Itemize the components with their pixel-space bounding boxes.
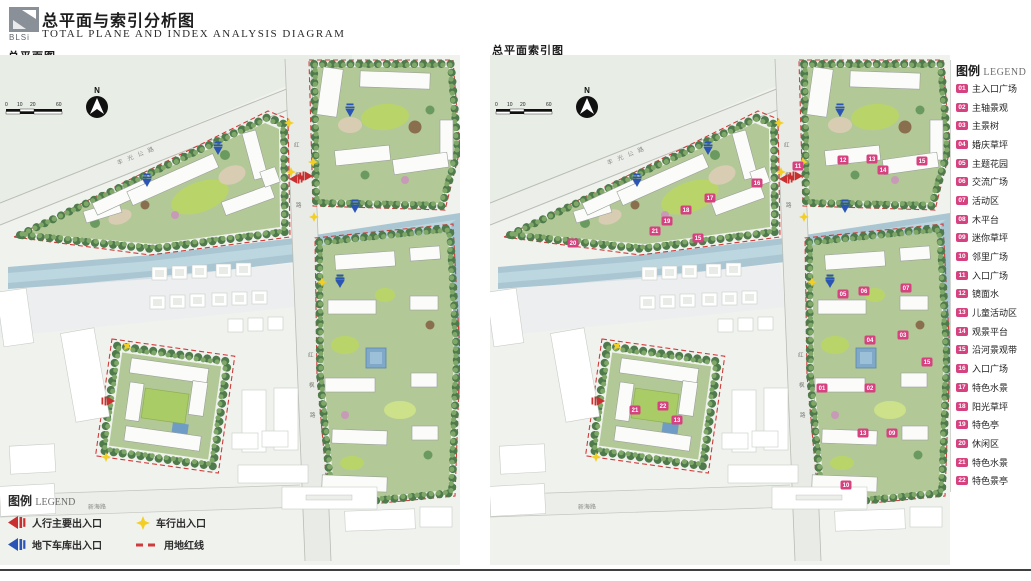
index-plan-canvas: 丰光公路 红 枫 路 红 枫 路 新海路 2021191817161511121… xyxy=(490,55,950,565)
index-marker: 15 xyxy=(693,234,704,243)
svg-text:05: 05 xyxy=(840,292,847,298)
index-legend-label: 邻里广场 xyxy=(972,250,1008,263)
index-legend-item: 10邻里广场 xyxy=(956,247,1030,266)
svg-text:60: 60 xyxy=(546,102,552,108)
index-legend-label: 木平台 xyxy=(972,213,999,226)
index-legend-item: 07活动区 xyxy=(956,191,1030,210)
legend-item-pedestrian: 人行主要出入口 xyxy=(8,515,136,530)
index-legend-badge: 11 xyxy=(956,271,968,280)
index-legend-badge: 22 xyxy=(956,476,968,485)
parcel-top-right xyxy=(799,60,950,210)
index-legend-badge: 07 xyxy=(956,196,968,205)
index-legend-label: 特色亭 xyxy=(972,418,999,431)
index-marker: 13 xyxy=(858,429,869,438)
index-marker: 15 xyxy=(917,157,928,166)
index-legend-list: 01主入口广场02主轴景观03主景树04婚庆草坪05主题花园06交流广场07活动… xyxy=(956,79,1030,490)
entrance-legend-title: 图例 LEGEND xyxy=(8,492,248,509)
svg-text:10: 10 xyxy=(843,483,850,489)
vertical-road-label-char: 路 xyxy=(800,411,806,419)
index-legend-label: 主题花园 xyxy=(972,157,1008,170)
index-legend-badge: 10 xyxy=(956,252,968,261)
vertical-road-label-char: 红 xyxy=(308,351,314,359)
index-legend-item: 22特色景亭 xyxy=(956,471,1030,490)
index-marker: 19 xyxy=(662,217,673,226)
index-marker: 11 xyxy=(793,162,804,171)
index-legend-item: 05主题花园 xyxy=(956,154,1030,173)
index-legend-label: 迷你草坪 xyxy=(972,231,1008,244)
vertical-road-label-char: 红 xyxy=(294,141,300,149)
index-legend-label: 儿童活动区 xyxy=(972,306,1017,319)
index-legend-item: 01主入口广场 xyxy=(956,79,1030,98)
index-legend-label: 休闲区 xyxy=(972,437,999,450)
index-legend-item: 21特色水景 xyxy=(956,453,1030,472)
site-plan-svg: 丰光公路 红 枫 路 红 枫 路 新海路 0 10 20 60 N xyxy=(0,55,460,565)
svg-text:N: N xyxy=(584,86,590,95)
svg-text:16: 16 xyxy=(754,181,761,187)
svg-text:14: 14 xyxy=(880,168,887,174)
index-legend-item: 09迷你草坪 xyxy=(956,229,1030,248)
svg-text:15: 15 xyxy=(919,159,926,165)
svg-text:12: 12 xyxy=(840,158,847,164)
index-marker: 02 xyxy=(865,384,876,393)
general-plan-canvas: 丰光公路 红 枫 路 红 枫 路 新海路 0 10 20 60 N xyxy=(0,55,460,565)
index-legend-badge: 09 xyxy=(956,233,968,242)
index-legend-item: 04婚庆草坪 xyxy=(956,135,1030,154)
company-logo-icon xyxy=(9,7,39,32)
index-legend-item: 12镜面水 xyxy=(956,285,1030,304)
vertical-road-label-char: 枫 xyxy=(799,381,805,389)
index-marker: 22 xyxy=(658,402,669,411)
index-marker: 21 xyxy=(630,406,641,415)
vertical-road-label-char: 路 xyxy=(786,201,792,209)
index-marker: 01 xyxy=(817,384,828,393)
index-legend-item: 11入口广场 xyxy=(956,266,1030,285)
svg-text:20: 20 xyxy=(570,241,577,247)
svg-text:17: 17 xyxy=(707,196,714,202)
index-legend-badge: 03 xyxy=(956,121,968,130)
svg-text:15: 15 xyxy=(695,236,702,242)
index-marker: 14 xyxy=(878,166,889,175)
legend-item-vehicle: 车行出入口 xyxy=(136,515,246,530)
index-legend-item: 13儿童活动区 xyxy=(956,303,1030,322)
page-subtitle: TOTAL PLANE AND INDEX ANALYSIS DIAGRAM xyxy=(42,28,345,40)
index-legend-title: 图例 LEGEND xyxy=(956,62,1030,79)
index-legend-label: 阳光草坪 xyxy=(972,400,1008,413)
svg-text:0: 0 xyxy=(495,102,498,108)
index-legend-label: 主景树 xyxy=(972,119,999,132)
garage-entrance-icon xyxy=(8,538,26,551)
legend-item-redline: 用地红线 xyxy=(136,537,246,552)
index-legend-label: 主轴景观 xyxy=(972,101,1008,114)
vertical-road-label-char: 红 xyxy=(784,141,790,149)
index-legend-badge: 19 xyxy=(956,420,968,429)
index-legend-label: 沿河景观带 xyxy=(972,343,1017,356)
legend-item-garage: 地下车库出入口 xyxy=(8,537,136,552)
index-marker: 12 xyxy=(838,156,849,165)
svg-text:13: 13 xyxy=(674,418,681,424)
redline-icon xyxy=(136,542,158,548)
svg-text:N: N xyxy=(94,86,100,95)
index-marker: 16 xyxy=(752,179,763,188)
pedestrian-entrance-icon xyxy=(8,516,26,529)
svg-text:22: 22 xyxy=(660,404,667,410)
index-legend-item: 08木平台 xyxy=(956,210,1030,229)
parcel-bottom-right xyxy=(315,224,460,508)
svg-text:20: 20 xyxy=(520,102,526,108)
index-legend-label: 特色水景 xyxy=(972,381,1008,394)
index-legend-item: 18阳光草坪 xyxy=(956,397,1030,416)
svg-text:21: 21 xyxy=(652,229,659,235)
site-plan-svg: 丰光公路 红 枫 路 红 枫 路 新海路 2021191817161511121… xyxy=(490,55,950,565)
svg-text:13: 13 xyxy=(860,431,867,437)
svg-text:60: 60 xyxy=(56,102,62,108)
svg-text:0: 0 xyxy=(5,102,8,108)
index-marker: 10 xyxy=(841,481,852,490)
index-legend-item: 17特色水景 xyxy=(956,378,1030,397)
index-legend-label: 入口广场 xyxy=(972,269,1008,282)
index-legend: 图例 LEGEND 01主入口广场02主轴景观03主景树04婚庆草坪05主题花园… xyxy=(956,62,1030,490)
index-legend-badge: 08 xyxy=(956,215,968,224)
svg-text:07: 07 xyxy=(903,286,910,292)
index-marker: 04 xyxy=(865,336,876,345)
index-legend-badge: 02 xyxy=(956,103,968,112)
svg-text:10: 10 xyxy=(507,102,513,108)
index-marker: 06 xyxy=(859,287,870,296)
vehicle-entrance-icon xyxy=(136,516,150,530)
index-marker: 05 xyxy=(838,290,849,299)
index-marker: 13 xyxy=(672,416,683,425)
index-legend-badge: 05 xyxy=(956,159,968,168)
page: BLSi 总平面与索引分析图 TOTAL PLANE AND INDEX ANA… xyxy=(0,0,1031,581)
index-legend-badge: 13 xyxy=(956,308,968,317)
svg-text:21: 21 xyxy=(632,408,639,414)
index-legend-badge: 14 xyxy=(956,327,968,336)
index-marker: 20 xyxy=(568,239,579,248)
index-legend-label: 观景平台 xyxy=(972,325,1008,338)
index-legend-badge: 01 xyxy=(956,84,968,93)
index-marker: 13 xyxy=(867,155,878,164)
index-legend-badge: 06 xyxy=(956,177,968,186)
index-legend-badge: 16 xyxy=(956,364,968,373)
vertical-road-label-char: 枫 xyxy=(309,381,315,389)
index-legend-badge: 21 xyxy=(956,458,968,467)
svg-text:15: 15 xyxy=(924,360,931,366)
index-marker: 09 xyxy=(887,429,898,438)
index-marker: 18 xyxy=(681,206,692,215)
index-legend-item: 06交流广场 xyxy=(956,172,1030,191)
index-legend-item: 15沿河景观带 xyxy=(956,341,1030,360)
index-marker: 21 xyxy=(650,227,661,236)
svg-text:10: 10 xyxy=(17,102,23,108)
index-legend-badge: 18 xyxy=(956,402,968,411)
index-legend-item: 16入口广场 xyxy=(956,359,1030,378)
svg-text:09: 09 xyxy=(889,431,896,437)
index-legend-label: 特色景亭 xyxy=(972,474,1008,487)
svg-text:04: 04 xyxy=(867,338,874,344)
svg-text:06: 06 xyxy=(861,289,868,295)
index-legend-item: 03主景树 xyxy=(956,116,1030,135)
vertical-road-label-char: 路 xyxy=(296,201,302,209)
index-legend-badge: 04 xyxy=(956,140,968,149)
index-legend-badge: 15 xyxy=(956,345,968,354)
svg-text:03: 03 xyxy=(900,333,907,339)
index-legend-item: 02主轴景观 xyxy=(956,98,1030,117)
vertical-road-label-char: 红 xyxy=(798,351,804,359)
index-legend-label: 活动区 xyxy=(972,194,999,207)
index-marker: 17 xyxy=(705,194,716,203)
svg-text:13: 13 xyxy=(869,157,876,163)
svg-text:18: 18 xyxy=(683,208,690,214)
entrance-legend: 图例 LEGEND 人行主要出入口 车行出入口 xyxy=(8,492,248,552)
index-legend-badge: 17 xyxy=(956,383,968,392)
index-legend-item: 20休闲区 xyxy=(956,434,1030,453)
bottom-rule xyxy=(0,569,1031,571)
index-legend-badge: 20 xyxy=(956,439,968,448)
svg-text:01: 01 xyxy=(819,386,826,392)
index-legend-label: 特色水景 xyxy=(972,456,1008,469)
index-legend-label: 婚庆草坪 xyxy=(972,138,1008,151)
index-legend-label: 交流广场 xyxy=(972,175,1008,188)
index-legend-badge: 12 xyxy=(956,289,968,298)
index-legend-item: 19特色亭 xyxy=(956,415,1030,434)
index-marker: 07 xyxy=(901,284,912,293)
index-marker: 15 xyxy=(922,358,933,367)
index-marker: 03 xyxy=(898,331,909,340)
parcel-top-right xyxy=(309,60,460,210)
index-legend-label: 主入口广场 xyxy=(972,82,1017,95)
legend-separator xyxy=(950,60,951,492)
index-legend-label: 入口广场 xyxy=(972,362,1008,375)
svg-text:11: 11 xyxy=(795,164,802,170)
svg-text:20: 20 xyxy=(30,102,36,108)
svg-text:19: 19 xyxy=(664,219,671,225)
vertical-road-label-char: 路 xyxy=(310,411,316,419)
index-legend-item: 14观景平台 xyxy=(956,322,1030,341)
svg-text:02: 02 xyxy=(867,386,874,392)
index-legend-label: 镜面水 xyxy=(972,287,999,300)
company-logo-text: BLSi xyxy=(9,33,30,42)
